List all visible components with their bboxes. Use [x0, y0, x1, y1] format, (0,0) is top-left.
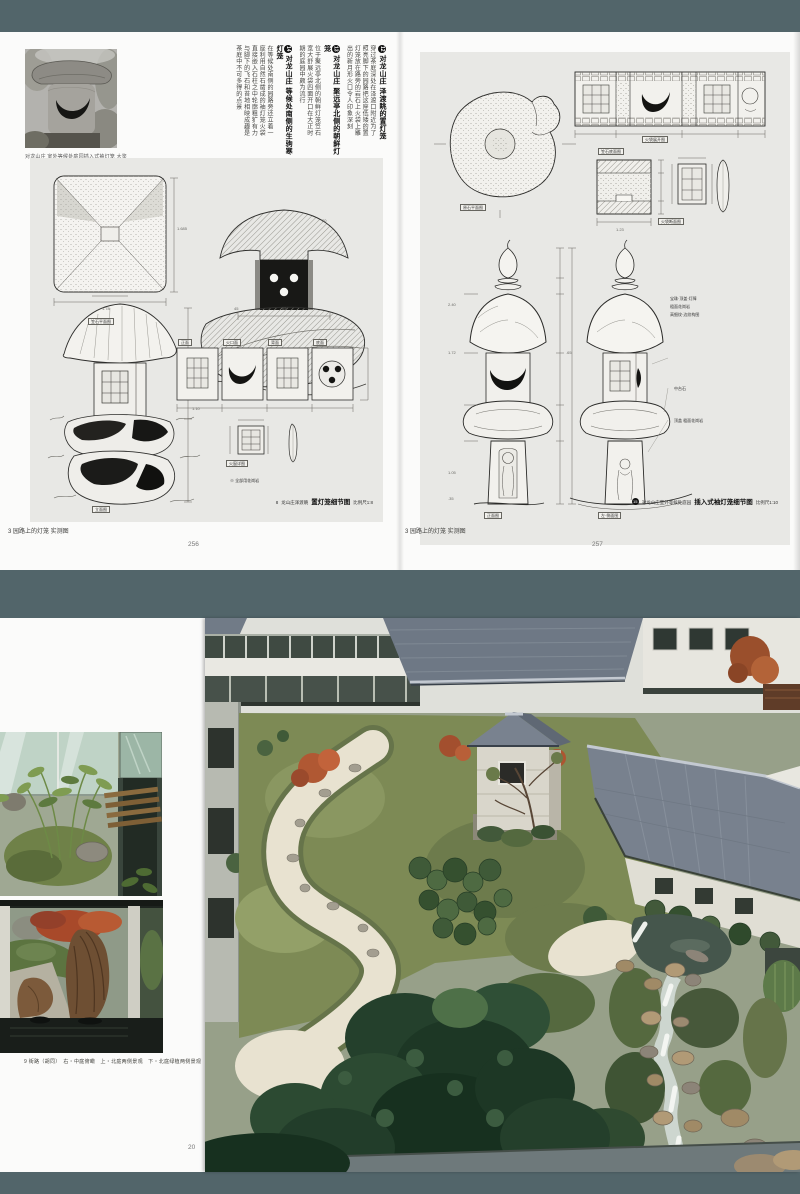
- page-edge: [793, 32, 800, 570]
- column-text: 灯笼放在路旁的岩石上火袋上雕: [353, 45, 359, 136]
- aerial-garden-illustration: [205, 618, 800, 1172]
- dim-label: 65: [282, 306, 286, 311]
- bamboo-court-illustration: [0, 732, 162, 896]
- left-page-footer: 3 园路上的灯笼 实测图: [8, 526, 69, 535]
- photo-spread: 9 街路（胡同） 右・中庭俯瞰 上・北庭两侧景观 下・北庭绿植两侧景观 20: [0, 618, 800, 1172]
- strip-label-fire: 火口面: [223, 339, 241, 346]
- annotation: 顶盖 粗面花岗岩: [674, 418, 703, 424]
- text-column: 座利用自然石凿成的袖灯笼火袋: [256, 45, 264, 157]
- lantern-photo-illustration: [25, 49, 117, 148]
- text-column: 14对龙山庄 等候处南侧的生驹寒灯笼: [275, 45, 293, 157]
- column-text: 对龙山庄 等候处南侧的生驹寒灯笼: [276, 45, 292, 155]
- window-detail-label: 火窗详图: [226, 460, 248, 467]
- caption-number-badge: 15: [632, 498, 639, 505]
- strip-label-front: 正面: [178, 339, 192, 346]
- drawing-spread: 对龙山庄 室外等候处庭园插入式袖灯笼 大鉴 12对龙山庄 泽渡眺的置灯笼穿过茶庭…: [0, 32, 800, 570]
- text-column: 直接嵌入石柱之中轮廓粗犷有力: [249, 45, 257, 157]
- dim-label: .35: [448, 496, 454, 501]
- text-column: 茶庭中不可多得的点景: [233, 45, 241, 157]
- caption-prefix: 龙山庄泽渡眺: [281, 500, 308, 506]
- right-panel-drawings: [420, 52, 790, 545]
- lantern-photo-bw: [25, 49, 117, 148]
- text-column: 与脚下的飞石和苔地相映成趣是: [241, 45, 249, 157]
- text-column: 位于聚远亭北侧的朝鲜灯笼笠石: [312, 45, 320, 157]
- annotation: 粗面花岗岩: [670, 304, 690, 310]
- annotation: 中台石: [674, 386, 686, 392]
- annotation: 高细纹·边纹构图: [670, 312, 699, 318]
- column-text: 茶庭中不可多得的点景: [235, 45, 241, 110]
- dim-label: 1.23: [616, 227, 624, 232]
- text-column: 期的庭园中颇为流行: [296, 45, 304, 157]
- right-drawing-panel: 原石平面图 火袋展开图 笠石底面图 火袋断面图 正面图 左·侧面图 宝珠·顶盖·…: [420, 52, 790, 545]
- left-drawing-panel: 笠石平面图 正面 火口面 背面 底面 立面图 火窗详图 ※ 全部用花岗岩 1.6…: [30, 158, 383, 522]
- photo-spread-caption: 9 街路（胡同） 右・中庭俯瞰 上・北庭两侧景观 下・北庭绿植两侧景观: [24, 1058, 201, 1065]
- cap-plan-label: 笠石平面图: [88, 318, 114, 325]
- material-note: ※ 全部用花岗岩: [230, 478, 259, 484]
- firebox-section-drawing: [597, 158, 729, 226]
- text-column: 照亮脚下的园路把这座低矮的置: [359, 45, 367, 157]
- column-text: 照亮脚下的园路把这座低矮的置: [361, 45, 367, 136]
- caption-title: 置灯笼细节图: [311, 496, 350, 506]
- caption-scale: 比例尺1:8: [353, 500, 373, 506]
- page-gutter: [396, 32, 404, 570]
- section-number-badge: 14: [284, 45, 292, 53]
- text-column: 宽大舒展火袋四面开口在大正时: [304, 45, 312, 157]
- text-column: 13对龙山庄 聚远亭北侧的朝鲜灯笼: [323, 45, 341, 157]
- right-page-footer: 3 园路上的灯笼 实测图: [405, 526, 466, 535]
- text-column: 12对龙山庄 泽渡眺的置灯笼: [378, 45, 387, 157]
- column-text: 对龙山庄 聚远亭北侧的朝鲜灯笼: [324, 45, 340, 155]
- book-scan-canvas: 对龙山庄 室外等候处庭园插入式袖灯笼 大鉴 12对龙山庄 泽渡眺的置灯笼穿过茶庭…: [0, 0, 800, 1194]
- cap-plan-drawing: [54, 176, 178, 306]
- left-page-number: 256: [188, 541, 199, 548]
- firebox-development-strip: [177, 348, 368, 412]
- dim-label: 1.10: [192, 406, 200, 411]
- column-text: 座利用自然石凿成的袖灯笼火袋: [258, 45, 264, 136]
- firebox-development-strip: [575, 72, 765, 138]
- right-page-number: 257: [592, 541, 603, 548]
- caption-title: 插入式袖灯笼细节图: [694, 496, 753, 506]
- column-text: 出的新月形火口令人印象深刻: [346, 45, 352, 130]
- dim-label: 2.40: [448, 302, 456, 307]
- stone-plan-label: 原石平面图: [460, 204, 486, 211]
- bottom-page-number: 20: [188, 1144, 195, 1151]
- lantern-side-elevation: [570, 240, 692, 509]
- dim-label: 45: [234, 306, 238, 311]
- section-number-badge: 13: [332, 45, 340, 53]
- strip-caption-1: 火袋展开图: [642, 136, 668, 143]
- courtyard-photo-top: [0, 732, 162, 896]
- strip-caption-2: 笠石底面图: [598, 148, 624, 155]
- section-number-badge: 12: [378, 45, 386, 53]
- lantern-front-elevation: [463, 240, 576, 505]
- caption-number: 8: [276, 500, 279, 505]
- dim-label: 1.78: [102, 306, 110, 311]
- section-caption: 火袋断面图: [658, 218, 684, 225]
- stone-plan-drawing: [434, 92, 576, 218]
- aerial-garden-photo: [205, 618, 800, 1172]
- column-text: 期的庭园中颇为流行: [298, 45, 304, 104]
- caption-scale: 比例尺1:10: [756, 500, 778, 506]
- strip-label-back: 背面: [268, 339, 282, 346]
- text-column: 穿过茶庭深处在泽渡口附近为了: [367, 45, 375, 157]
- caption-prefix: 对龙山庄室外等候处庭园: [642, 500, 692, 506]
- annotation: 宝珠·顶盖·灯障: [670, 296, 697, 302]
- right-panel-caption: 15 对龙山庄室外等候处庭园 插入式袖灯笼细节图 比例尺1:10: [632, 496, 778, 506]
- intro-text-columns: 12对龙山庄 泽渡眺的置灯笼穿过茶庭深处在泽渡口附近为了照亮脚下的园路把这座低矮…: [202, 45, 390, 157]
- dim-label: .65: [566, 350, 572, 355]
- main-roof: [383, 618, 643, 685]
- window-detail-drawing: [230, 420, 297, 462]
- rock-window-illustration: [0, 900, 163, 1053]
- front-view-label: 正面图: [484, 512, 502, 519]
- courtyard-photo-bottom: [0, 900, 163, 1053]
- column-text: 对龙山庄 泽渡眺的置灯笼: [379, 55, 386, 140]
- text-column: 出的新月形火口令人印象深刻: [344, 45, 352, 157]
- dim-label: 30: [322, 218, 326, 223]
- text-column: 灯笼放在路旁的岩石上火袋上雕: [352, 45, 360, 157]
- left-panel-drawings: [30, 158, 383, 522]
- strip-label-bottom: 底面: [313, 339, 327, 346]
- dim-label: 1.72: [448, 350, 456, 355]
- column-text: 在等候处南侧的园路旁还立着一: [266, 45, 272, 136]
- text-column: 在等候处南侧的园路旁还立着一: [264, 45, 272, 157]
- column-text: 位于聚远亭北侧的朝鲜灯笼笠石: [314, 45, 320, 136]
- dim-label: 1.05: [448, 470, 456, 475]
- column-text: 穿过茶庭深处在泽渡口附近为了: [369, 45, 375, 136]
- column-text: 直接嵌入石柱之中轮廓粗犷有力: [250, 45, 256, 136]
- left-panel-caption: 8 龙山庄泽渡眺 置灯笼细节图 比例尺1:8: [276, 496, 373, 506]
- column-text: 宽大舒展火袋四面开口在大正时: [306, 45, 312, 136]
- dim-label: 1.685: [177, 226, 187, 231]
- side-view-label: 左·侧面图: [598, 512, 621, 519]
- column-text: 与脚下的飞石和苔地相映成趣是: [243, 45, 249, 136]
- elevation-label: 立面图: [92, 506, 110, 513]
